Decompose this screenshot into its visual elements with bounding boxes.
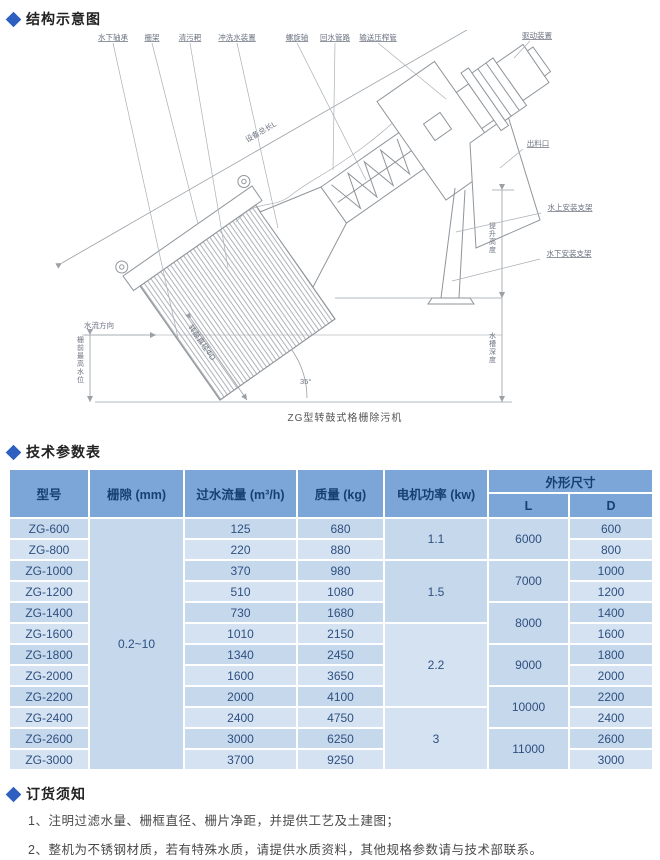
power-cell: 1.5 xyxy=(384,560,488,623)
length-cell: 8000 xyxy=(488,602,569,644)
col-header-L: L xyxy=(488,493,569,518)
diameter-cell: 2600 xyxy=(569,728,653,749)
flow-cell: 2400 xyxy=(184,707,297,728)
leader-line xyxy=(152,43,198,224)
model-cell: ZG-1000 xyxy=(9,560,89,581)
support-base xyxy=(428,298,474,304)
diameter-cell: 1200 xyxy=(569,581,653,602)
model-cell: ZG-2200 xyxy=(9,686,89,707)
flow-cell: 3000 xyxy=(184,728,297,749)
col-header-flow: 过水流量 (m³/h) xyxy=(184,469,297,518)
params-tbody: ZG-6000.2~101256801.16000600ZG-800220880… xyxy=(9,518,653,770)
diameter-cell: 1800 xyxy=(569,644,653,665)
flow-cell: 3700 xyxy=(184,749,297,770)
model-cell: ZG-1600 xyxy=(9,623,89,644)
table-row: ZG-6000.2~101256801.16000600 xyxy=(9,518,653,539)
order-notes: 1、注明过滤水量、栅框直径、栅片净距，并提供工艺及土建图； 2、整机为不锈钢材质… xyxy=(28,807,660,860)
diameter-cell: 2200 xyxy=(569,686,653,707)
diamond-bullet-icon xyxy=(6,444,22,460)
part-label-screw-shaft: 螺旋轴 xyxy=(286,32,309,42)
flow-cell: 1010 xyxy=(184,623,297,644)
part-label-bracket-above: 水上安装支架 xyxy=(548,202,593,212)
model-cell: ZG-600 xyxy=(9,518,89,539)
part-label-outlet: 出料口 xyxy=(527,138,550,148)
diameter-cell: 1000 xyxy=(569,560,653,581)
diameter-cell: 3000 xyxy=(569,749,653,770)
mass-cell: 2450 xyxy=(297,644,384,665)
mass-cell: 2150 xyxy=(297,623,384,644)
channel-depth-label: 水槽深度 xyxy=(489,331,497,364)
flow-direction-label: 水流方向 xyxy=(84,320,114,330)
diameter-cell: 2400 xyxy=(569,707,653,728)
part-label-press-pipe: 输送压榨管 xyxy=(359,32,397,42)
section-title: 订货须知 xyxy=(26,784,86,804)
datasheet-page: 结构示意图 设备总长L xyxy=(0,0,660,860)
table-header-row: 型号 栅隙 (mm) 过水流量 (m³/h) 质量 (kg) 电机功率 (kw)… xyxy=(9,469,653,493)
flow-cell: 730 xyxy=(184,602,297,623)
note-item: 1、注明过滤水量、栅框直径、栅片净距，并提供工艺及土建图； xyxy=(28,807,660,836)
model-cell: ZG-2000 xyxy=(9,665,89,686)
angle-arc xyxy=(292,350,308,399)
lifting-lug-hole xyxy=(120,265,124,269)
water-level-label: 栅前最高水位 xyxy=(77,335,85,384)
col-header-gap: 栅隙 (mm) xyxy=(89,469,184,518)
diagram-caption: ZG型转鼓式格栅除污机 xyxy=(288,411,403,424)
flow-cell: 220 xyxy=(184,539,297,560)
flow-cell: 1340 xyxy=(184,644,297,665)
support-leg xyxy=(459,190,465,298)
leader-line xyxy=(452,259,540,281)
mass-cell: 9250 xyxy=(297,749,384,770)
length-cell: 9000 xyxy=(488,644,569,686)
note-item: 2、整机为不锈钢材质，若有特殊水质，请提供水质资料，其他规格参数请与技术部联系。 xyxy=(28,836,660,860)
power-cell: 2.2 xyxy=(384,623,488,707)
section-header-order: 订货须知 xyxy=(0,771,660,805)
lifting-lug-hole xyxy=(242,179,246,183)
length-cell: 7000 xyxy=(488,560,569,602)
col-header-mass: 质量 (kg) xyxy=(297,469,384,518)
params-table-wrap: 型号 栅隙 (mm) 过水流量 (m³/h) 质量 (kg) 电机功率 (kw)… xyxy=(8,468,652,771)
diamond-bullet-icon xyxy=(6,786,22,802)
mass-cell: 880 xyxy=(297,539,384,560)
mass-cell: 680 xyxy=(297,518,384,539)
section-header-structure: 结构示意图 xyxy=(0,0,660,30)
diameter-cell: 600 xyxy=(569,518,653,539)
diameter-cell: 2000 xyxy=(569,665,653,686)
col-header-D: D xyxy=(569,493,653,518)
model-cell: ZG-3000 xyxy=(9,749,89,770)
params-table: 型号 栅隙 (mm) 过水流量 (m³/h) 质量 (kg) 电机功率 (kw)… xyxy=(8,468,654,771)
diameter-cell: 1400 xyxy=(569,602,653,623)
part-label-frame: 栅架 xyxy=(145,32,160,42)
section-title: 技术参数表 xyxy=(26,442,101,462)
outlet-chute xyxy=(470,116,540,248)
mass-cell: 3650 xyxy=(297,665,384,686)
mass-cell: 4750 xyxy=(297,707,384,728)
part-label-bracket-below: 水下安装支架 xyxy=(547,248,592,258)
length-cell: 6000 xyxy=(488,518,569,560)
part-label-return-pipe: 回水管路 xyxy=(320,32,350,42)
leader-line xyxy=(297,43,366,180)
diameter-cell: 800 xyxy=(569,539,653,560)
section-header-params: 技术参数表 xyxy=(0,437,660,463)
col-header-power: 电机功率 (kw) xyxy=(384,469,488,518)
model-cell: ZG-800 xyxy=(9,539,89,560)
mass-cell: 6250 xyxy=(297,728,384,749)
model-cell: ZG-1200 xyxy=(9,581,89,602)
mass-cell: 1080 xyxy=(297,581,384,602)
model-cell: ZG-1800 xyxy=(9,644,89,665)
model-cell: ZG-2400 xyxy=(9,707,89,728)
lift-height-label: 提升高度 xyxy=(489,221,497,254)
part-label-underwater-bearing: 水下轴承 xyxy=(98,32,128,42)
col-header-dims: 外形尺寸 xyxy=(488,469,653,493)
angle-label: 35° xyxy=(300,377,311,386)
power-cell: 1.1 xyxy=(384,518,488,560)
model-cell: ZG-2600 xyxy=(9,728,89,749)
length-cell: 10000 xyxy=(488,686,569,728)
flow-cell: 510 xyxy=(184,581,297,602)
length-cell: 11000 xyxy=(488,728,569,770)
flow-cell: 2000 xyxy=(184,686,297,707)
total-length-label: 设备总长L xyxy=(243,119,278,145)
part-label-flush-device: 冲洗水装置 xyxy=(218,32,256,42)
flow-cell: 370 xyxy=(184,560,297,581)
col-header-model: 型号 xyxy=(9,469,89,518)
diamond-bullet-icon xyxy=(6,11,22,27)
structure-diagram: 设备总长L 35° xyxy=(0,30,660,432)
mass-cell: 1680 xyxy=(297,602,384,623)
gap-cell: 0.2~10 xyxy=(89,518,184,770)
model-cell: ZG-1400 xyxy=(9,602,89,623)
part-label-rake: 清污耙 xyxy=(179,32,202,42)
mass-cell: 980 xyxy=(297,560,384,581)
section-title: 结构示意图 xyxy=(26,9,101,29)
diameter-cell: 1600 xyxy=(569,623,653,644)
support-leg xyxy=(441,188,455,298)
flow-cell: 1600 xyxy=(184,665,297,686)
part-label-drive: 驱动装置 xyxy=(522,30,552,40)
mass-cell: 4100 xyxy=(297,686,384,707)
power-cell: 3 xyxy=(384,707,488,770)
flow-cell: 125 xyxy=(184,518,297,539)
